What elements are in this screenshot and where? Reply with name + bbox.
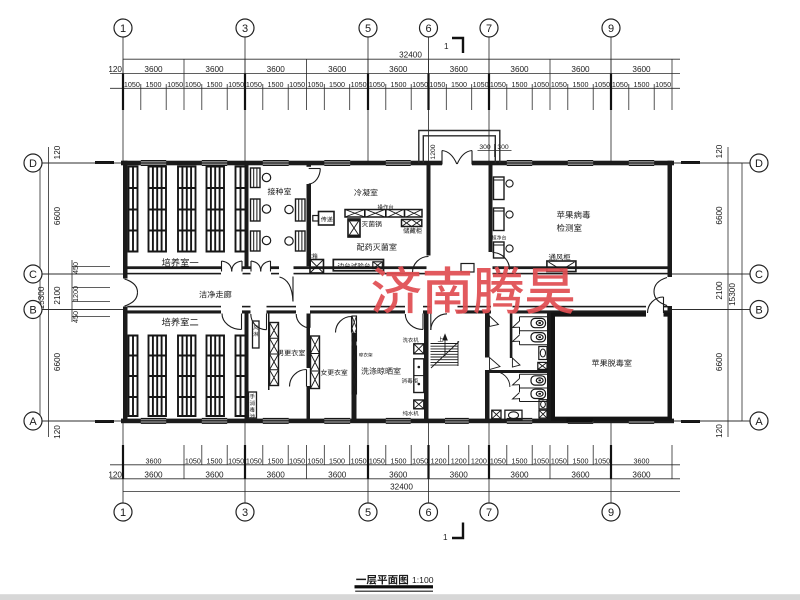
svg-text:1500: 1500 xyxy=(634,80,650,89)
svg-text:3600: 3600 xyxy=(389,65,408,74)
svg-text:1050: 1050 xyxy=(533,456,549,465)
svg-text:300: 300 xyxy=(497,144,509,151)
svg-text:1500: 1500 xyxy=(207,456,223,465)
svg-text:1200: 1200 xyxy=(430,144,437,159)
svg-text:D: D xyxy=(755,158,763,170)
svg-text:1500: 1500 xyxy=(512,80,528,89)
svg-text:1050: 1050 xyxy=(369,456,385,465)
svg-text:1050: 1050 xyxy=(551,456,567,465)
svg-text:B: B xyxy=(755,305,762,317)
svg-text:1500: 1500 xyxy=(329,456,345,465)
svg-text:1050: 1050 xyxy=(594,456,610,465)
svg-text:1050: 1050 xyxy=(351,456,367,465)
svg-text:1500: 1500 xyxy=(451,80,467,89)
svg-text:120: 120 xyxy=(108,65,122,74)
svg-text:1050: 1050 xyxy=(594,80,610,89)
svg-text:1050: 1050 xyxy=(246,456,262,465)
svg-text:1200: 1200 xyxy=(471,456,487,465)
svg-text:A: A xyxy=(29,416,37,428)
svg-text:3: 3 xyxy=(242,507,248,519)
svg-text:3600: 3600 xyxy=(205,65,224,74)
svg-text:5: 5 xyxy=(365,507,371,519)
svg-text:3600: 3600 xyxy=(571,470,590,479)
svg-text:3600: 3600 xyxy=(267,470,286,479)
svg-text:1: 1 xyxy=(120,507,126,519)
svg-text:7: 7 xyxy=(486,507,492,519)
svg-text:15300: 15300 xyxy=(728,283,737,306)
svg-text:1200: 1200 xyxy=(71,286,80,302)
svg-text:1500: 1500 xyxy=(573,456,589,465)
svg-text:9: 9 xyxy=(608,23,614,35)
svg-text:A: A xyxy=(755,416,763,428)
svg-text:1500: 1500 xyxy=(207,80,223,89)
svg-text:3600: 3600 xyxy=(144,65,163,74)
svg-text:6600: 6600 xyxy=(715,206,724,225)
svg-text:6600: 6600 xyxy=(715,352,724,371)
svg-text:3600: 3600 xyxy=(389,470,408,479)
svg-text:1050: 1050 xyxy=(167,80,183,89)
svg-text:3600: 3600 xyxy=(146,456,162,465)
svg-text:3600: 3600 xyxy=(510,470,529,479)
svg-text:3600: 3600 xyxy=(450,470,469,479)
svg-text:1050: 1050 xyxy=(124,80,140,89)
svg-text:C: C xyxy=(755,269,763,281)
svg-text:3600: 3600 xyxy=(328,65,347,74)
svg-text:1050: 1050 xyxy=(369,80,385,89)
svg-text:1:100: 1:100 xyxy=(412,575,434,585)
svg-text:C: C xyxy=(29,269,37,281)
svg-text:1050: 1050 xyxy=(490,456,506,465)
svg-text:3600: 3600 xyxy=(205,470,224,479)
svg-text:450: 450 xyxy=(71,311,80,323)
svg-text:7: 7 xyxy=(486,23,492,35)
svg-text:1500: 1500 xyxy=(391,456,407,465)
svg-text:1200: 1200 xyxy=(451,456,467,465)
svg-text:2100: 2100 xyxy=(53,286,62,305)
svg-text:1050: 1050 xyxy=(473,80,489,89)
svg-text:3600: 3600 xyxy=(450,65,469,74)
svg-text:1050: 1050 xyxy=(655,80,671,89)
svg-text:120: 120 xyxy=(53,145,62,159)
svg-text:1500: 1500 xyxy=(573,80,589,89)
svg-text:32400: 32400 xyxy=(390,483,413,492)
svg-text:1050: 1050 xyxy=(289,456,305,465)
svg-text:1: 1 xyxy=(443,533,448,542)
svg-text:3: 3 xyxy=(242,23,248,35)
svg-text:3600: 3600 xyxy=(144,470,163,479)
svg-text:1050: 1050 xyxy=(228,456,244,465)
svg-text:1: 1 xyxy=(120,23,126,35)
svg-text:6: 6 xyxy=(425,23,431,35)
svg-text:120: 120 xyxy=(53,425,62,439)
svg-text:300: 300 xyxy=(479,144,491,151)
svg-text:1500: 1500 xyxy=(268,80,284,89)
svg-text:120: 120 xyxy=(108,470,122,479)
svg-text:1050: 1050 xyxy=(533,80,549,89)
svg-text:2100: 2100 xyxy=(715,281,724,300)
svg-text:3600: 3600 xyxy=(634,456,650,465)
svg-text:1050: 1050 xyxy=(490,80,506,89)
svg-text:1050: 1050 xyxy=(307,80,323,89)
svg-text:1050: 1050 xyxy=(185,456,201,465)
svg-text:3600: 3600 xyxy=(571,65,590,74)
svg-text:1500: 1500 xyxy=(329,80,345,89)
svg-text:120: 120 xyxy=(715,144,724,158)
svg-text:1050: 1050 xyxy=(228,80,244,89)
svg-text:1050: 1050 xyxy=(551,80,567,89)
svg-text:120: 120 xyxy=(715,424,724,438)
svg-text:32400: 32400 xyxy=(399,51,422,60)
svg-text:D: D xyxy=(29,158,37,170)
svg-text:1050: 1050 xyxy=(412,80,428,89)
svg-text:6600: 6600 xyxy=(53,352,62,371)
svg-text:1050: 1050 xyxy=(612,80,628,89)
svg-text:1050: 1050 xyxy=(412,456,428,465)
svg-text:1050: 1050 xyxy=(289,80,305,89)
svg-text:6: 6 xyxy=(425,507,431,519)
svg-text:1500: 1500 xyxy=(512,456,528,465)
svg-text:1200: 1200 xyxy=(431,456,447,465)
svg-text:5: 5 xyxy=(365,23,371,35)
svg-text:1500: 1500 xyxy=(391,80,407,89)
svg-text:6600: 6600 xyxy=(53,206,62,225)
svg-text:1050: 1050 xyxy=(307,456,323,465)
svg-text:1050: 1050 xyxy=(351,80,367,89)
svg-text:1050: 1050 xyxy=(185,80,201,89)
svg-text:3600: 3600 xyxy=(510,65,529,74)
svg-text:3600: 3600 xyxy=(632,470,651,479)
svg-text:1: 1 xyxy=(444,42,449,51)
svg-text:1050: 1050 xyxy=(429,80,445,89)
svg-text:3600: 3600 xyxy=(267,65,286,74)
svg-text:1500: 1500 xyxy=(268,456,284,465)
svg-text:3600: 3600 xyxy=(328,470,347,479)
svg-text:3600: 3600 xyxy=(632,65,651,74)
svg-text:9: 9 xyxy=(608,507,614,519)
svg-text:B: B xyxy=(29,305,36,317)
svg-text:1500: 1500 xyxy=(146,80,162,89)
svg-text:450: 450 xyxy=(71,262,80,274)
svg-text:1050: 1050 xyxy=(246,80,262,89)
